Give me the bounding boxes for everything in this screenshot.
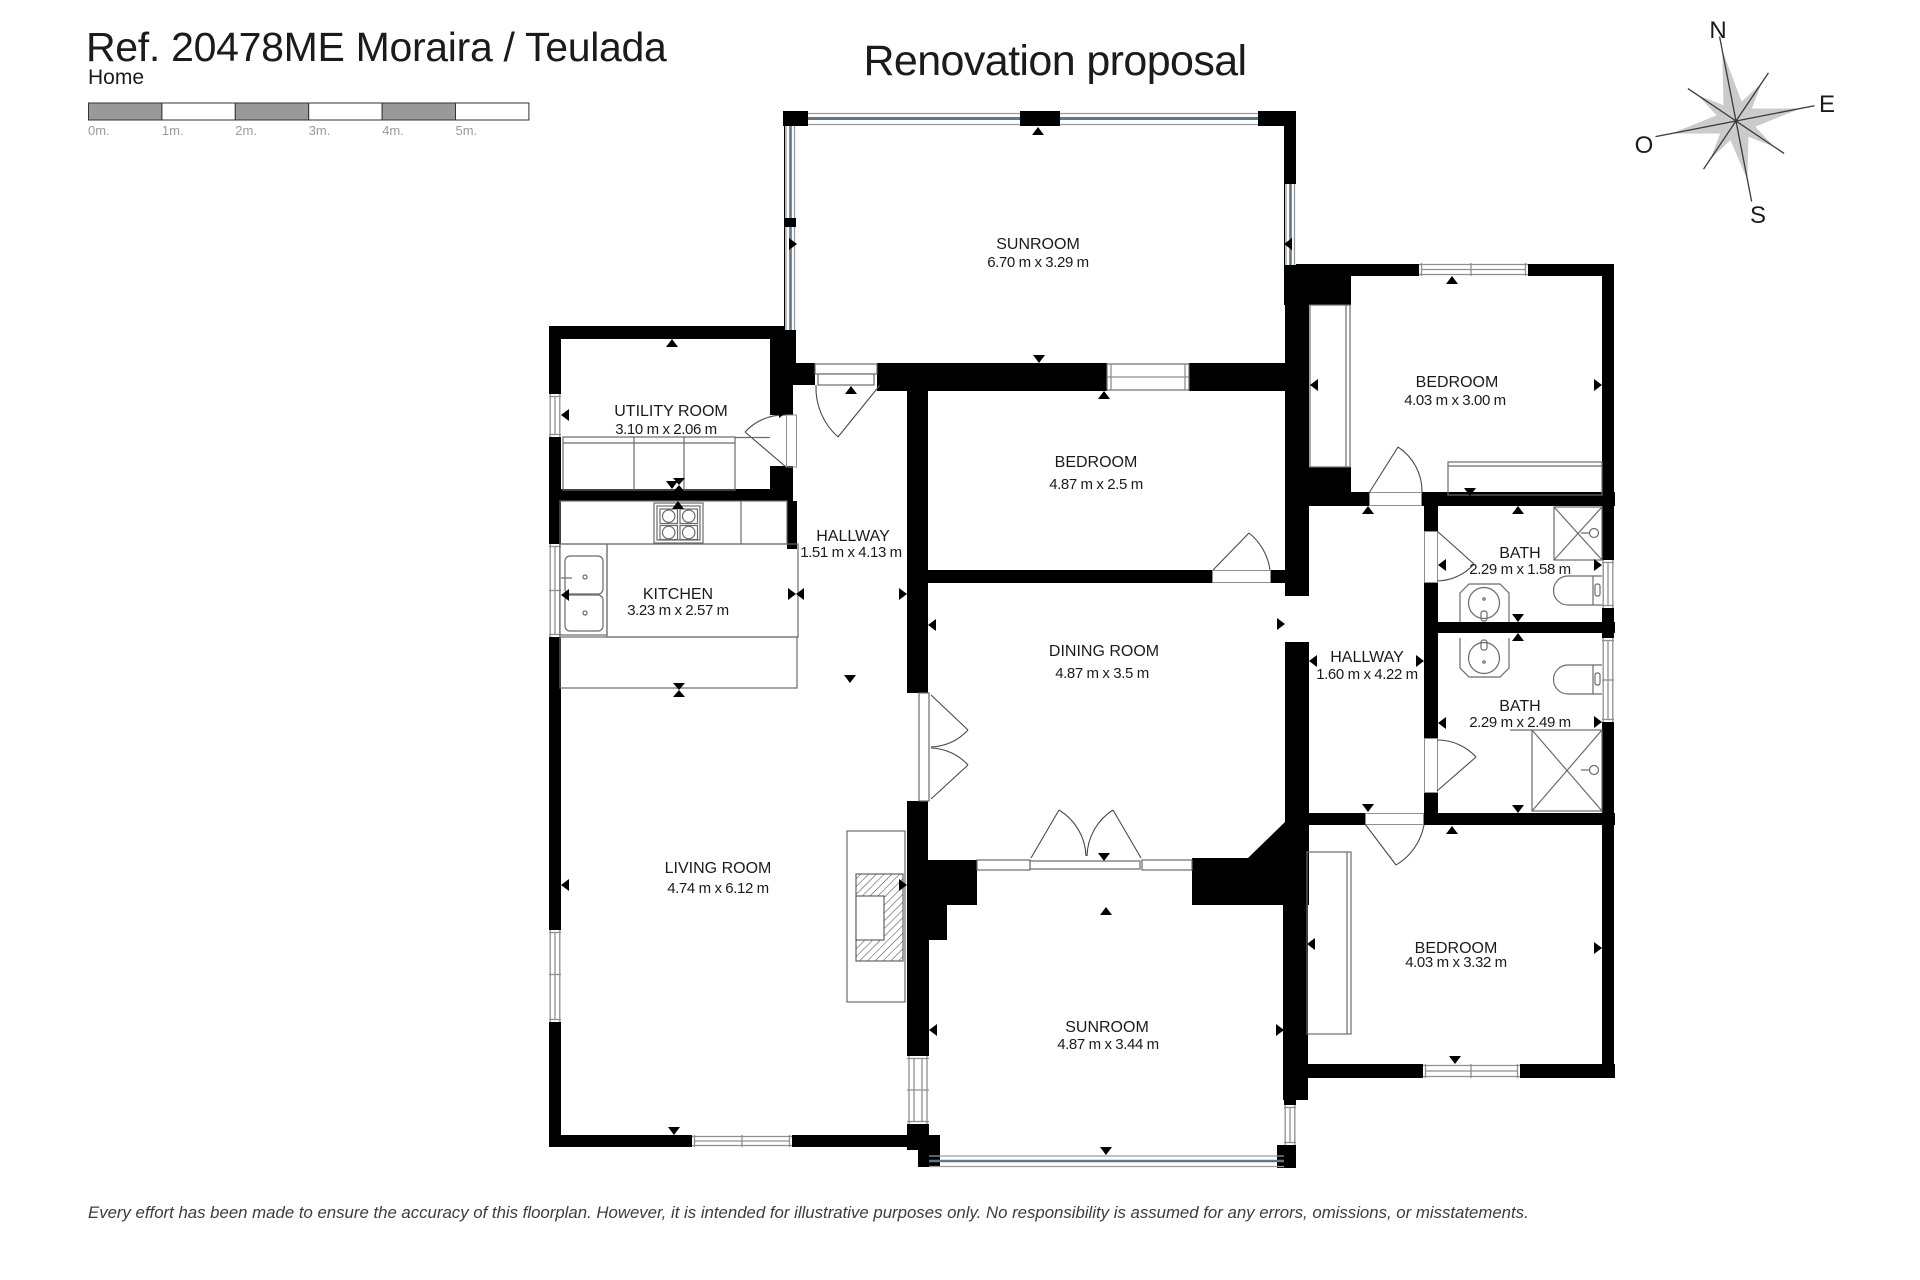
svg-text:1.51 m x 4.13 m: 1.51 m x 4.13 m <box>800 544 902 561</box>
svg-text:1m.: 1m. <box>162 123 184 138</box>
svg-text:0m.: 0m. <box>88 123 110 138</box>
svg-text:4.87 m x 3.44 m: 4.87 m x 3.44 m <box>1057 1036 1159 1053</box>
svg-text:Every effort has been made to: Every effort has been made to ensure the… <box>88 1203 1529 1222</box>
svg-text:Renovation proposal: Renovation proposal <box>863 37 1246 85</box>
svg-text:E: E <box>1819 91 1835 118</box>
svg-text:4.87 m x 2.5 m: 4.87 m x 2.5 m <box>1049 476 1143 493</box>
svg-text:HALLWAY: HALLWAY <box>816 528 890 545</box>
svg-text:BATH: BATH <box>1499 698 1540 715</box>
svg-text:3m.: 3m. <box>309 123 331 138</box>
svg-text:BATH: BATH <box>1499 545 1540 562</box>
svg-text:1.60 m x 4.22 m: 1.60 m x 4.22 m <box>1316 666 1418 683</box>
svg-text:2.29 m x 1.58 m: 2.29 m x 1.58 m <box>1469 561 1571 578</box>
svg-text:3.10 m x 2.06 m: 3.10 m x 2.06 m <box>615 421 717 438</box>
svg-text:BEDROOM: BEDROOM <box>1055 454 1138 471</box>
svg-text:6.70 m x 3.29 m: 6.70 m x 3.29 m <box>987 254 1089 271</box>
svg-text:2m.: 2m. <box>235 123 257 138</box>
svg-text:3.23 m x 2.57 m: 3.23 m x 2.57 m <box>627 602 729 619</box>
svg-text:Ref. 20478ME Moraira / Teulada: Ref. 20478ME Moraira / Teulada <box>86 24 667 70</box>
svg-text:2.29 m x 2.49 m: 2.29 m x 2.49 m <box>1469 714 1571 731</box>
svg-text:DINING ROOM: DINING ROOM <box>1049 643 1159 660</box>
svg-text:N: N <box>1709 17 1726 44</box>
svg-text:O: O <box>1635 132 1654 159</box>
svg-text:LIVING ROOM: LIVING ROOM <box>665 860 772 877</box>
svg-text:SUNROOM: SUNROOM <box>1065 1019 1149 1036</box>
svg-text:Home: Home <box>88 66 144 89</box>
svg-text:BEDROOM: BEDROOM <box>1416 374 1499 391</box>
svg-text:4.87 m x 3.5 m: 4.87 m x 3.5 m <box>1055 665 1149 682</box>
svg-text:5m.: 5m. <box>456 123 478 138</box>
svg-text:S: S <box>1750 202 1766 229</box>
svg-text:UTILITY ROOM: UTILITY ROOM <box>614 403 728 420</box>
svg-text:4.03 m x 3.32 m: 4.03 m x 3.32 m <box>1405 954 1507 971</box>
svg-text:4m.: 4m. <box>382 123 404 138</box>
svg-text:HALLWAY: HALLWAY <box>1330 649 1404 666</box>
svg-text:4.74 m x 6.12 m: 4.74 m x 6.12 m <box>667 880 769 897</box>
svg-text:4.03 m x 3.00 m: 4.03 m x 3.00 m <box>1404 392 1506 409</box>
svg-text:SUNROOM: SUNROOM <box>996 236 1080 253</box>
svg-text:KITCHEN: KITCHEN <box>643 586 713 603</box>
